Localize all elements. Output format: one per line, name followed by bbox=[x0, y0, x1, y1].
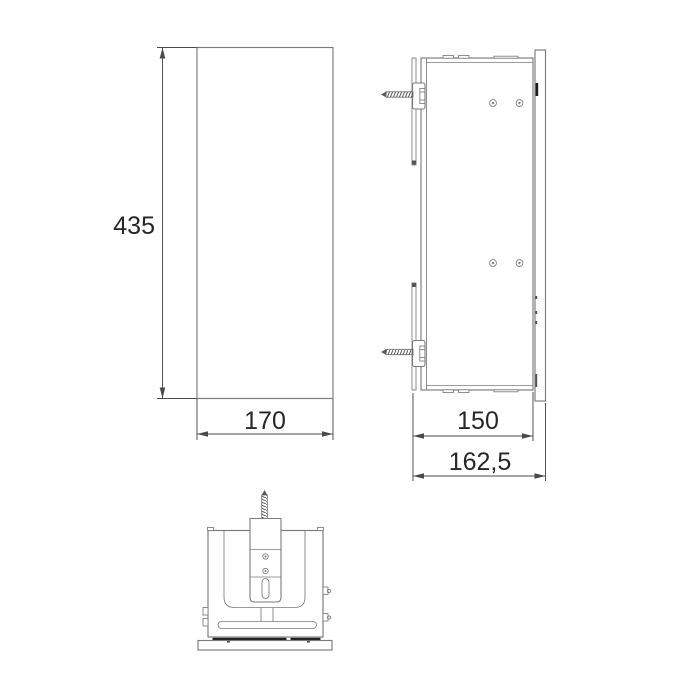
arrow-left-icon bbox=[413, 433, 424, 439]
total-depth-dimension-label: 162,5 bbox=[449, 448, 512, 476]
panel-tick bbox=[535, 374, 537, 387]
dimension-width: 170 bbox=[197, 399, 333, 440]
front-panel-plan-outline bbox=[198, 641, 332, 651]
panel-tick bbox=[535, 311, 537, 314]
technical-drawing: 435 170 bbox=[0, 0, 700, 700]
panel-tick bbox=[535, 296, 537, 299]
bracket-outline bbox=[413, 83, 426, 109]
screw-hole-center bbox=[492, 262, 494, 264]
screw-shaft bbox=[386, 349, 413, 354]
screw-holes bbox=[490, 100, 523, 267]
tab bbox=[459, 390, 470, 393]
front-view: 435 170 bbox=[113, 48, 333, 441]
screw-shaft bbox=[262, 495, 268, 519]
plate-tick bbox=[227, 641, 230, 643]
front-panel-side bbox=[535, 50, 546, 401]
center-bracket bbox=[250, 519, 281, 603]
arrow-right-icon bbox=[535, 473, 546, 479]
tab bbox=[494, 56, 518, 58]
panel-tick bbox=[535, 321, 537, 324]
arrow-left-icon bbox=[413, 473, 424, 479]
rail-bottom bbox=[412, 283, 416, 390]
arrow-left-icon bbox=[197, 431, 208, 437]
front-view-cabinet-outline bbox=[197, 48, 333, 399]
mounting-screw-plan bbox=[262, 490, 268, 519]
mounting-bracket-bottom bbox=[413, 341, 426, 367]
arrow-up-icon bbox=[160, 48, 166, 59]
arrow-right-icon bbox=[322, 431, 333, 437]
side-view-body-outline bbox=[421, 58, 533, 390]
bracket-outline bbox=[413, 341, 426, 367]
front-panel-outline bbox=[535, 50, 546, 401]
width-dimension-label: 170 bbox=[244, 407, 286, 435]
bracket-outline bbox=[250, 519, 281, 603]
rail-top bbox=[412, 58, 416, 165]
depth-dimension-label: 150 bbox=[457, 407, 499, 435]
dimension-height: 435 bbox=[113, 48, 197, 399]
tab bbox=[459, 55, 470, 58]
screw-tip bbox=[262, 490, 268, 495]
tab bbox=[203, 608, 208, 616]
bottom-view bbox=[198, 490, 332, 650]
screw-hole-center bbox=[265, 556, 267, 558]
arrow-down-icon bbox=[160, 388, 166, 399]
screw-hole-center bbox=[518, 102, 520, 104]
screw-hole-center bbox=[518, 262, 520, 264]
screw-hole-center bbox=[265, 570, 267, 572]
plate-tick bbox=[307, 641, 310, 643]
rail-end-mark bbox=[412, 161, 416, 165]
tab bbox=[203, 619, 208, 627]
rail-end-mark bbox=[412, 283, 416, 287]
height-dimension-label: 435 bbox=[113, 212, 155, 240]
mounting-bracket-top bbox=[413, 83, 426, 109]
screw-hole-center bbox=[492, 102, 494, 104]
tab bbox=[494, 390, 518, 392]
body-edge-tabs bbox=[443, 55, 518, 392]
edge-lip bbox=[318, 528, 324, 531]
side-view: 150 162,5 bbox=[381, 50, 546, 481]
tab bbox=[443, 390, 454, 393]
mounting-screw-bottom bbox=[381, 349, 413, 354]
screw-tip bbox=[381, 349, 386, 354]
tab bbox=[443, 55, 454, 58]
panel-mark bbox=[536, 83, 539, 96]
screw-shaft bbox=[386, 92, 413, 97]
edge-lip bbox=[208, 528, 214, 531]
technical-drawing-page: 435 170 bbox=[0, 0, 700, 700]
screw-tip bbox=[381, 92, 386, 97]
arrow-right-icon bbox=[522, 433, 533, 439]
mounting-screw-top bbox=[381, 92, 413, 97]
inner-band bbox=[218, 622, 317, 629]
